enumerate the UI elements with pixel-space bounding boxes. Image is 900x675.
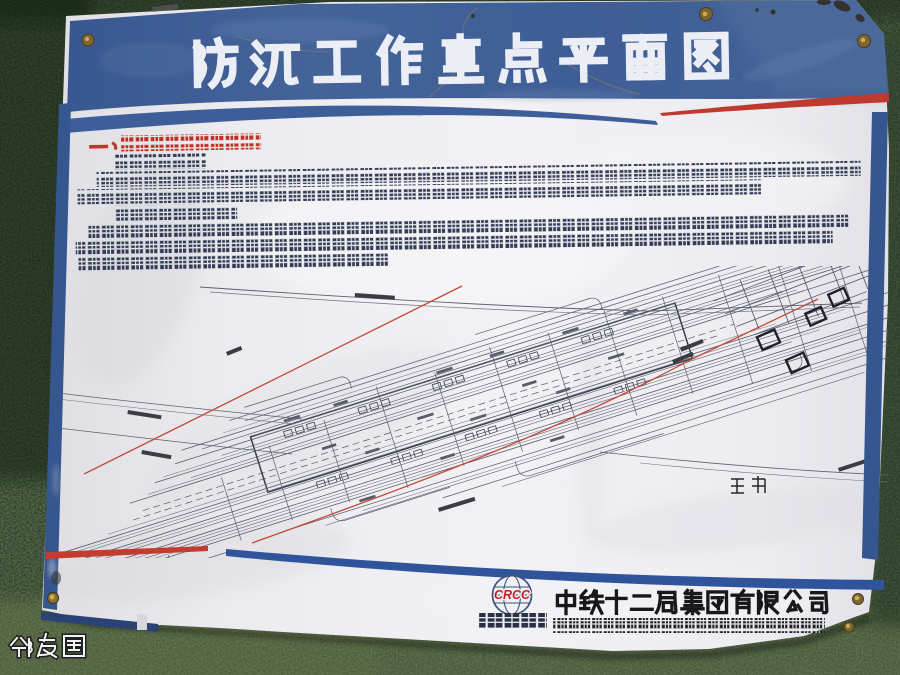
svg-text:CRCC: CRCC (494, 588, 531, 602)
